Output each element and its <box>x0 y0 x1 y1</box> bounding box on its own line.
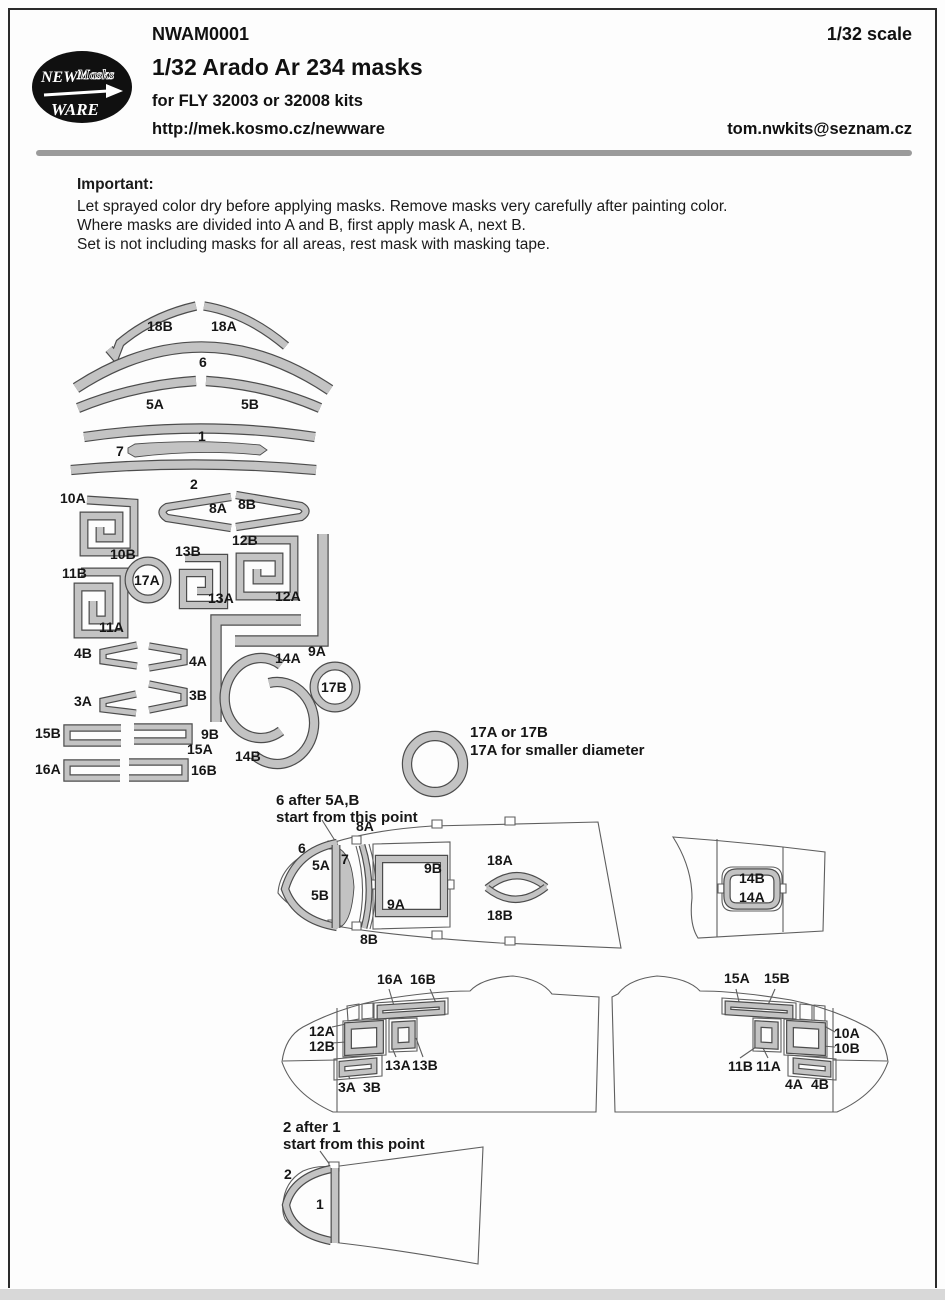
placement-label-15B: 15B <box>764 971 790 985</box>
newware-logo: NEW Masks WARE <box>30 48 134 126</box>
mask-label-13A: 13A <box>208 591 234 605</box>
mask-label-10B: 10B <box>110 547 136 561</box>
placement-label-4A: 4A <box>785 1077 803 1091</box>
placement-label-9B: 9B <box>424 861 442 875</box>
mask-16A-band <box>67 763 120 778</box>
placement-label-3B: 3B <box>363 1080 381 1094</box>
canopy-frame-line <box>356 846 363 928</box>
placement-label-11A: 11A <box>756 1059 781 1073</box>
mask-15B-band <box>67 728 121 743</box>
important-heading: Important: <box>77 176 727 194</box>
mask-14B-band <box>254 682 314 764</box>
important-line-3: Set is not including masks for all areas… <box>77 235 727 254</box>
mask-label-4A: 4A <box>189 654 207 668</box>
mask-label-3A: 3A <box>74 694 92 708</box>
placement-4-band <box>796 1061 828 1074</box>
sheet-title: 1/32 Arado Ar 234 masks <box>152 54 423 81</box>
mask-16B-band <box>129 762 185 778</box>
mask-label-12B: 12B <box>232 533 258 547</box>
placement-label-5A: 5A <box>312 858 330 872</box>
mask-10-spiral <box>84 500 134 552</box>
small-window <box>800 1004 812 1020</box>
placement-label-11B: 11B <box>728 1059 753 1073</box>
nose-bottom-outline <box>283 1147 483 1264</box>
mask-label-8B: 8B <box>238 497 256 511</box>
mask-label-4B: 4B <box>74 646 92 660</box>
mask-label-14A: 14A <box>275 651 301 665</box>
frame-tab <box>352 836 361 844</box>
placement-label-16B: 16B <box>410 972 436 986</box>
mask-label-13B: 13B <box>175 544 201 558</box>
canopy-note-line-1: 6 after 5A,B <box>276 793 359 808</box>
logo-word-masks: Masks <box>76 68 115 83</box>
mask-label-3B: 3B <box>189 688 207 702</box>
mask-label-1: 1 <box>198 429 206 443</box>
placement-label-13B: 13B <box>412 1058 438 1072</box>
mask-label-15B: 15B <box>35 726 61 740</box>
placement-label-8A: 8A <box>356 819 374 833</box>
frame-tab <box>432 931 442 939</box>
placement-label-9A: 9A <box>387 897 405 911</box>
page-bottom-edge <box>0 1289 945 1300</box>
mask-label-11A: 11A <box>99 620 124 634</box>
placement-label-6: 6 <box>298 841 306 855</box>
mask-label-5B: 5B <box>241 397 259 411</box>
label-leader <box>393 1050 396 1057</box>
placement-label-13A: 13A <box>385 1058 411 1072</box>
mask-label-18B: 18B <box>147 319 173 333</box>
website-url: http://mek.kosmo.cz/newware <box>152 120 385 139</box>
label-leader <box>740 1047 756 1058</box>
label-leader <box>430 989 436 1003</box>
important-note: Important: Let sprayed color dry before … <box>77 176 727 254</box>
frame-tab <box>505 817 515 825</box>
placement-label-14B: 14B <box>739 871 765 885</box>
instruction-sheet-page: NEW Masks WARE NWAM0001 1/32 Arado Ar 23… <box>0 0 945 1300</box>
placement-label-12A: 12A <box>309 1024 335 1038</box>
placement-label-18B: 18B <box>487 908 513 922</box>
placement-3-band <box>342 1061 374 1074</box>
product-code: NWAM0001 <box>152 24 249 45</box>
ring-note-line-2: 17A for smaller diameter <box>470 743 645 758</box>
important-line-1: Let sprayed color dry before applying ma… <box>77 197 727 216</box>
nose-note-line-2: start from this point <box>283 1137 425 1152</box>
frame-tab <box>718 884 724 893</box>
mask-label-18A: 18A <box>211 319 237 333</box>
placement-label-3A: 3A <box>338 1080 356 1094</box>
mask-label-17A: 17A <box>134 573 160 587</box>
frame-tab <box>352 922 361 930</box>
important-line-2: Where masks are divided into A and B, fi… <box>77 216 727 235</box>
scale-note: 1/32 scale <box>827 24 912 45</box>
placement-label-10B: 10B <box>834 1041 860 1055</box>
placement-label-14A: 14A <box>739 890 765 904</box>
mask-label-7: 7 <box>116 444 124 458</box>
placement-label-18A: 18A <box>487 853 513 867</box>
logo-word-ware: WARE <box>51 100 99 119</box>
ring-note-line-1: 17A or 17B <box>470 725 548 740</box>
placement-label-1: 1 <box>316 1197 324 1211</box>
mask-4A-band <box>149 646 184 668</box>
mask-label-15A: 15A <box>187 742 213 756</box>
mask-17-spare-ring <box>407 736 463 792</box>
mask-label-16B: 16B <box>191 763 217 777</box>
panel-line <box>833 1060 887 1061</box>
frame-tab <box>780 884 786 893</box>
mask-label-6: 6 <box>199 355 207 369</box>
mask-7-shape <box>128 442 267 457</box>
mask-label-11B: 11B <box>62 566 87 580</box>
placement-label-12B: 12B <box>309 1039 335 1053</box>
placement-label-10A: 10A <box>834 1026 860 1040</box>
logo-word-new: NEW <box>40 69 79 86</box>
small-window <box>362 1003 373 1019</box>
mask-15A-band <box>134 727 189 741</box>
mask-14A-band <box>225 658 281 738</box>
mask-label-10A: 10A <box>60 491 86 505</box>
placement-label-16A: 16A <box>377 972 403 986</box>
mask-label-17B: 17B <box>321 680 347 694</box>
contact-email: tom.nwkits@seznam.cz <box>727 120 912 139</box>
mask-label-5A: 5A <box>146 397 164 411</box>
placement-label-8B: 8B <box>360 932 378 946</box>
kit-compatibility: for FLY 32003 or 32008 kits <box>152 92 363 111</box>
placement-label-15A: 15A <box>724 971 750 985</box>
mask-label-8A: 8A <box>209 501 227 515</box>
placement-label-2: 2 <box>284 1167 292 1181</box>
mask-label-9A: 9A <box>308 644 326 658</box>
placement-label-5B: 5B <box>311 888 329 902</box>
placement-label-7: 7 <box>341 852 349 866</box>
mask-label-9B: 9B <box>201 727 219 741</box>
panel-line <box>283 1060 337 1061</box>
mask-10-spiral-edge <box>84 500 134 552</box>
mask-label-12A: 12A <box>275 589 301 603</box>
frame-tab <box>432 820 442 828</box>
header-divider <box>36 150 912 156</box>
mask-label-14B: 14B <box>235 749 261 763</box>
placement-label-4B: 4B <box>811 1077 829 1091</box>
canopy-note-line-2: start from this point <box>276 810 418 825</box>
nose-note-line-1: 2 after 1 <box>283 1120 341 1135</box>
aft-fragment-outline <box>673 837 825 938</box>
mask-label-16A: 16A <box>35 762 61 776</box>
mask-label-2: 2 <box>190 477 198 491</box>
frame-tab <box>505 937 515 945</box>
